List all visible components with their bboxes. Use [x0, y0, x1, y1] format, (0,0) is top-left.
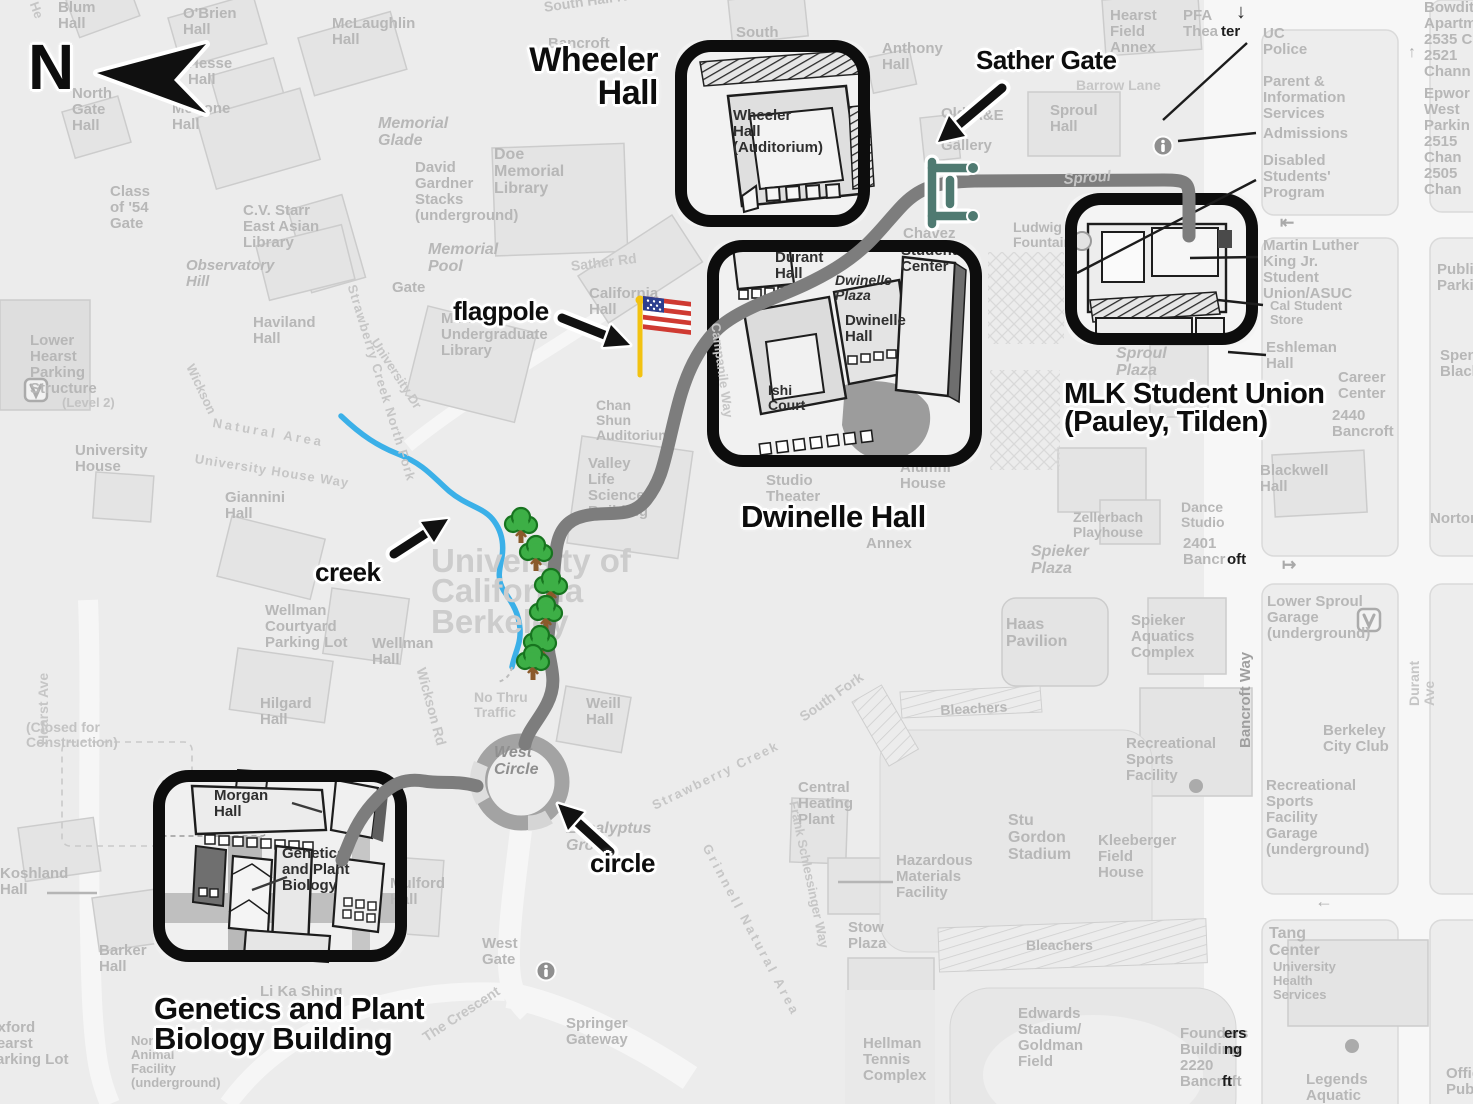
- annotations-layer: NWheeler HallSather GateflagpoleMLK Stud…: [0, 0, 1473, 1104]
- compass-letter: N: [28, 36, 74, 98]
- creek-label: creek: [315, 560, 380, 585]
- campus-map: HeBlum HallO'Brien HallMcLaughlin HallHe…: [0, 0, 1473, 1104]
- wheeler-hall-label: Wheeler Hall: [529, 44, 658, 110]
- circle-label: circle: [590, 851, 655, 876]
- mlk-student-union-label: MLK Student Union (Pauley, Tilden): [1064, 380, 1325, 436]
- flagpole-label: flagpole: [453, 299, 549, 324]
- dwinelle-hall-label: Dwinelle Hall: [741, 502, 926, 532]
- sather-gate-label: Sather Gate: [976, 48, 1116, 73]
- genetics-building-label: Genetics and Plant Biology Building: [154, 994, 424, 1054]
